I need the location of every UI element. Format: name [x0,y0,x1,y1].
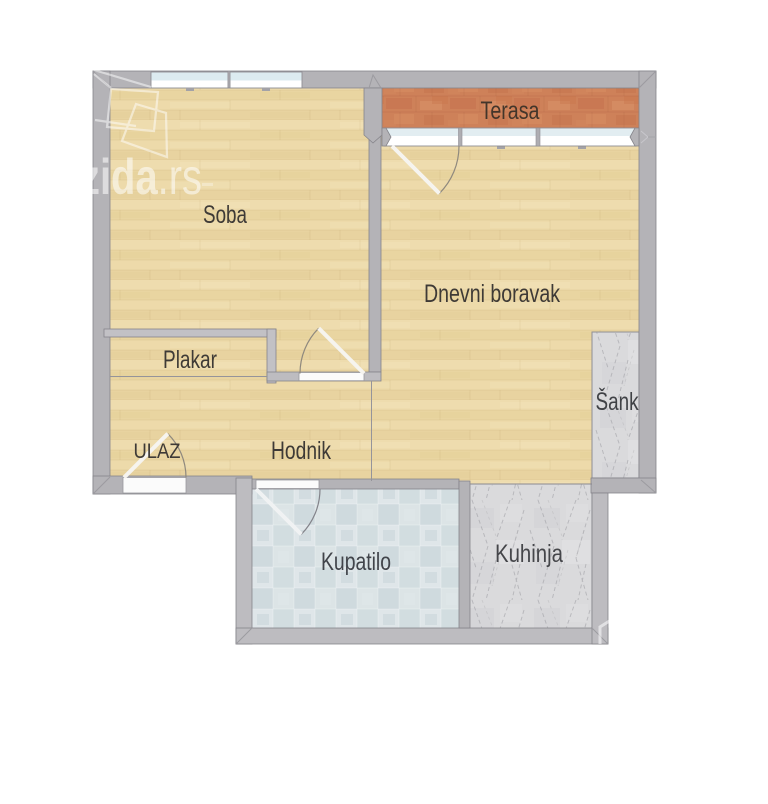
svg-text:Kupatilo: Kupatilo [321,548,391,576]
svg-text:Kuhinja: Kuhinja [495,540,563,568]
svg-text:Terasa: Terasa [481,97,540,125]
svg-text:zida.rs: zida.rs [80,149,202,205]
svg-text:Hodnik: Hodnik [271,437,331,465]
svg-text:Soba: Soba [203,201,247,229]
svg-text:Dnevni boravak: Dnevni boravak [424,280,560,308]
svg-text:Plakar: Plakar [163,346,217,374]
svg-text:ULAZ: ULAZ [134,440,181,463]
svg-text:Šank: Šank [596,387,639,416]
